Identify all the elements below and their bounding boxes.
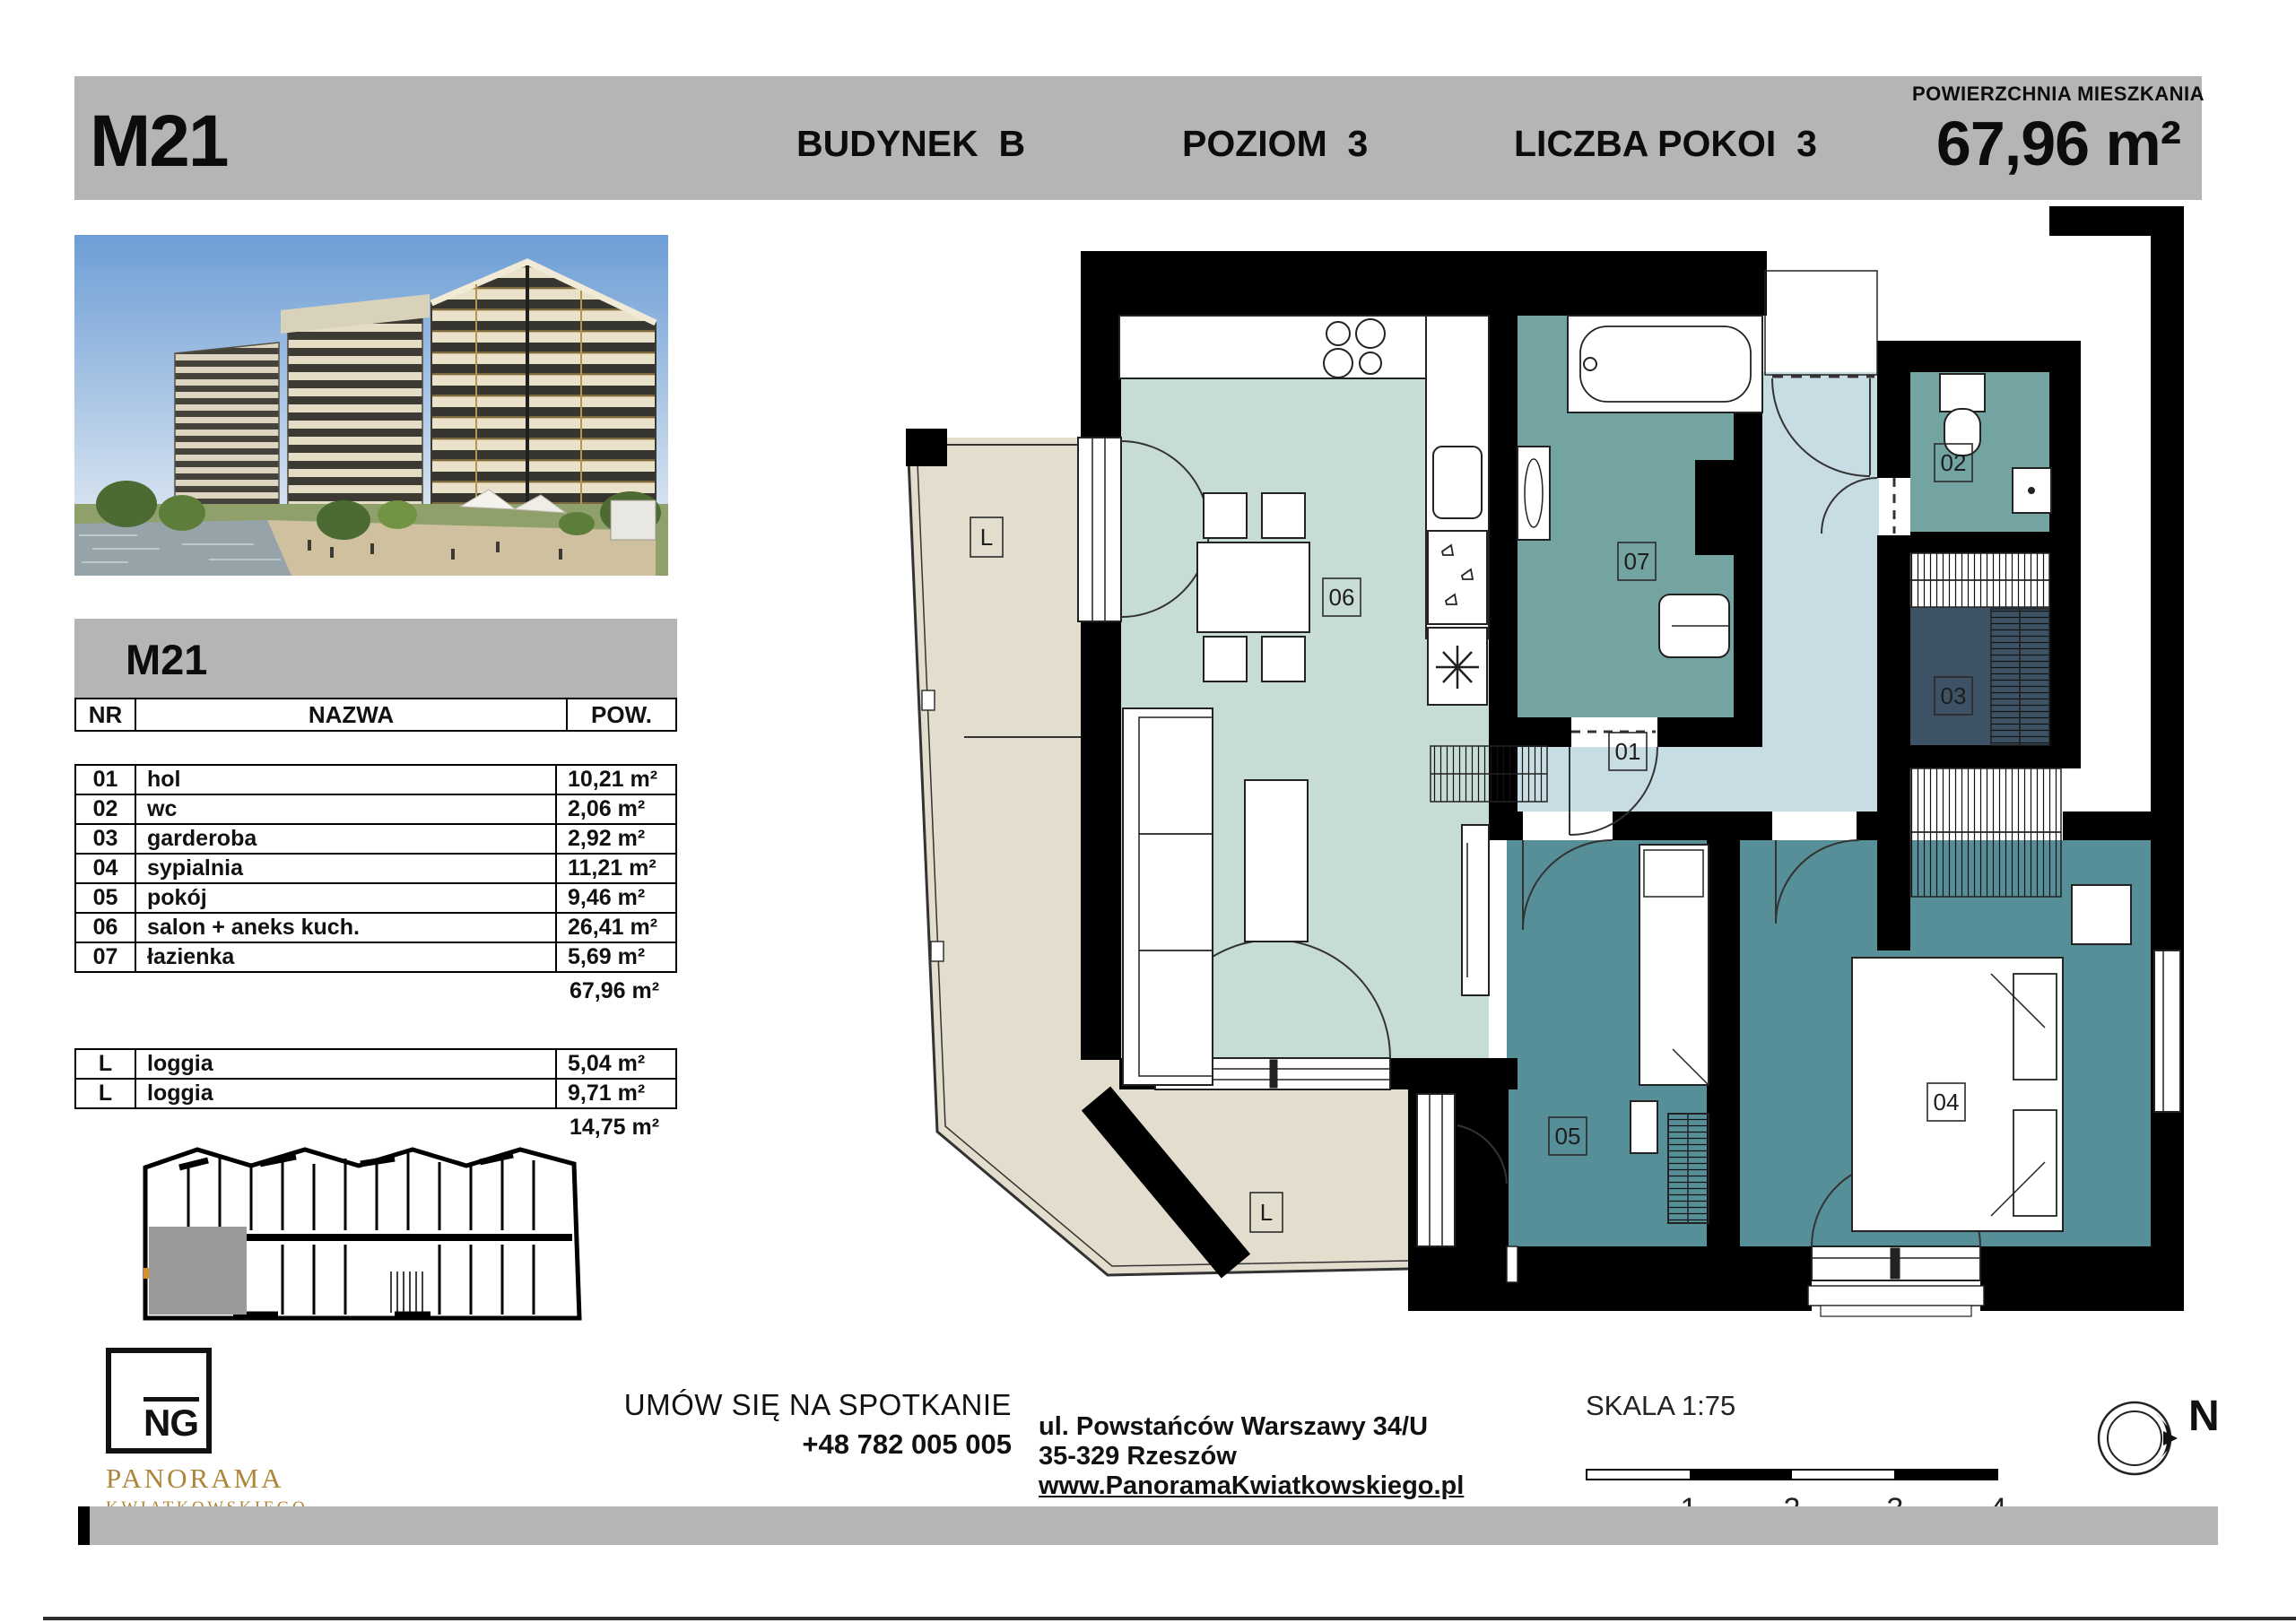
logo-monogram: NG	[143, 1397, 199, 1445]
footer-bar	[78, 1506, 2218, 1545]
floor-overview-plan	[126, 1137, 592, 1358]
north-arrow-icon	[2081, 1384, 2188, 1492]
room-table-header: NR NAZWA POW.	[74, 698, 677, 732]
cta-text: UMÓW SIĘ NA SPOTKANIE	[574, 1388, 1012, 1422]
svg-text:04: 04	[1934, 1089, 1960, 1115]
footer-bar-accent	[78, 1506, 90, 1545]
highlighted-unit	[149, 1227, 247, 1315]
scale-bar	[1586, 1469, 1998, 1480]
building-photo	[74, 235, 668, 576]
table-row: 07łazienka5,69 m²	[75, 942, 676, 972]
svg-text:L: L	[1260, 1199, 1273, 1226]
svg-text:01: 01	[1615, 738, 1641, 765]
table-row: Lloggia9,71 m²	[75, 1079, 676, 1108]
col-nr: NR	[75, 699, 135, 731]
table-row: 02wc2,06 m²	[75, 794, 676, 824]
address-block: ul. Powstańców Warszawy 34/U 35-329 Rzes…	[1039, 1412, 1464, 1501]
coffee-table	[1245, 780, 1308, 942]
tv-unit	[1462, 825, 1489, 995]
rooms-count-label: LICZBA POKOI 3	[1514, 76, 1817, 200]
table-row: Lloggia5,04 m²	[75, 1049, 676, 1079]
dining-table	[1197, 542, 1309, 632]
level-label: POZIOM 3	[1182, 76, 1368, 200]
room-rows: 01hol10,21 m² 02wc2,06 m² 03garderoba2,9…	[74, 764, 677, 973]
phone-number: +48 782 005 005	[574, 1428, 1012, 1461]
nightstand	[1631, 1101, 1657, 1153]
header-bar	[74, 76, 2202, 200]
sofa	[1123, 708, 1213, 1085]
area-value: 67,96 m²	[1901, 108, 2215, 179]
kitchen-cabinet	[1428, 531, 1487, 624]
rooms-total-area: 67,96 m²	[74, 973, 677, 1009]
chair	[1262, 637, 1305, 681]
address-street: ul. Powstańców Warszawy 34/U	[1039, 1412, 1464, 1442]
col-pow: POW.	[567, 699, 676, 731]
chair	[1262, 493, 1305, 538]
logo-name-line1: PANORAMA	[106, 1462, 375, 1495]
loggia-rows: Lloggia5,04 m² Lloggia9,71 m²	[74, 1048, 677, 1109]
svg-text:05: 05	[1555, 1123, 1581, 1150]
col-nazwa: NAZWA	[135, 699, 567, 731]
chair	[1204, 637, 1247, 681]
toilet-tank	[1940, 374, 1985, 412]
bath-sink-icon	[1518, 447, 1550, 540]
building-label: BUDYNEK B	[796, 76, 1025, 200]
contact-cta-block: UMÓW SIĘ NA SPOTKANIE +48 782 005 005	[574, 1388, 1012, 1461]
svg-text:06: 06	[1329, 584, 1355, 611]
address-city: 35-329 Rzeszów	[1039, 1442, 1464, 1471]
nightstand	[2072, 885, 2131, 944]
room-table: M21 NR NAZWA POW. 01hol10,21 m² 02wc2,06…	[74, 619, 677, 1145]
apartment-card-page: M21 BUDYNEK B POZIOM 3 LICZBA POKOI 3 PO…	[0, 0, 2296, 1623]
apartment-floorplan: 06 07 01 02 03 05 04 L L	[879, 206, 2188, 1318]
area-caption: POWIERZCHNIA MIESZKANIA	[1901, 82, 2215, 106]
room-table-title: M21	[74, 619, 677, 698]
table-row: 04sypialnia11,21 m²	[75, 854, 676, 883]
svg-text:07: 07	[1624, 548, 1650, 575]
svg-text:02: 02	[1941, 449, 1967, 476]
table-row: 03garderoba2,92 m²	[75, 824, 676, 854]
logo-monogram-box: NG	[106, 1348, 212, 1454]
table-row: 05pokój9,46 m²	[75, 883, 676, 913]
chair	[1204, 493, 1247, 538]
single-bed	[1639, 845, 1709, 1085]
website-link[interactable]: www.PanoramaKwiatkowskiego.pl	[1039, 1471, 1464, 1501]
table-row: 06salon + aneks kuch.26,41 m²	[75, 913, 676, 942]
apartment-area: POWIERZCHNIA MIESZKANIA 67,96 m²	[1901, 82, 2215, 179]
table-row: 01hol10,21 m²	[75, 765, 676, 794]
scale-label: SKALA 1:75	[1586, 1390, 1735, 1422]
svg-text:03: 03	[1941, 682, 1967, 709]
unit-number: M21	[90, 76, 228, 200]
svg-text:L: L	[980, 524, 993, 551]
developer-logo: NG PANORAMA KWIATKOWSKIEGO	[106, 1348, 375, 1518]
loggia-pillar	[906, 429, 947, 466]
north-label: N	[2188, 1392, 2220, 1441]
page-bottom-edge	[43, 1617, 2296, 1620]
kitchen-sink-icon	[1433, 447, 1482, 518]
